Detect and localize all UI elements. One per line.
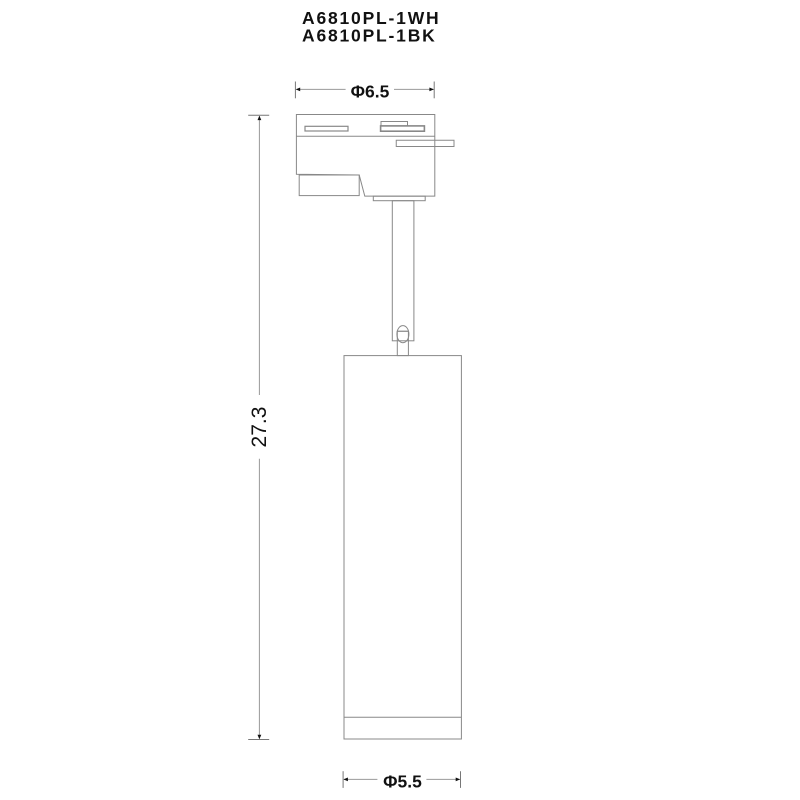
- svg-text:27.3: 27.3: [248, 407, 271, 448]
- svg-text:Φ6.5: Φ6.5: [351, 82, 390, 102]
- svg-text:Φ5.5: Φ5.5: [383, 771, 422, 791]
- svg-text:A6810PL-1BK: A6810PL-1BK: [302, 25, 437, 45]
